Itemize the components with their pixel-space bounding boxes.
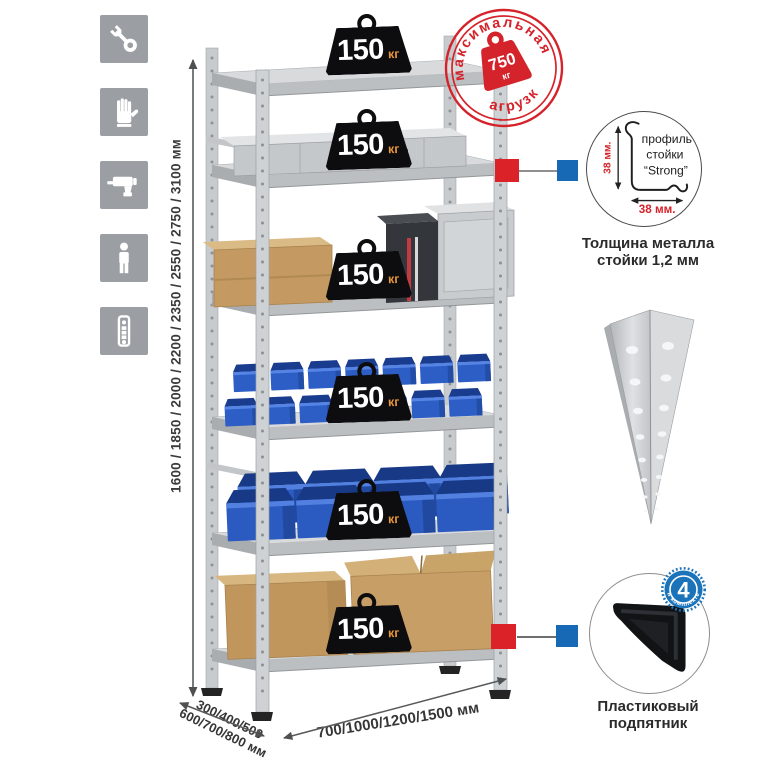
plastic-feet bbox=[201, 666, 511, 721]
svg-text:профиль: профиль bbox=[642, 132, 692, 146]
shelf-load-badge: 150кг bbox=[321, 237, 415, 302]
callout-marker-blue-bottom bbox=[556, 625, 578, 647]
svg-text:38 мм.: 38 мм. bbox=[602, 142, 613, 174]
corner-post-image bbox=[588, 298, 713, 528]
callout-marker-red-bottom bbox=[491, 624, 516, 649]
strong-profile-diagram: 38 мм. 38 мм. профиль стойки “Strong” bbox=[587, 112, 698, 223]
max-load-stamp: максимальная нагрузка 750 кг bbox=[442, 4, 566, 128]
quantity-badge: 4 в комплекте bbox=[660, 566, 707, 613]
shelf-load-badge: 150кг bbox=[321, 477, 415, 542]
callout-marker-blue-top bbox=[557, 160, 578, 181]
shelf-load-badge: 150кг bbox=[321, 360, 415, 425]
shelf-load-badge: 150кг bbox=[321, 12, 415, 77]
svg-text:стойки: стойки bbox=[646, 148, 683, 162]
svg-text:4: 4 bbox=[677, 578, 690, 603]
callout-marker-red-top bbox=[495, 159, 519, 182]
product-infographic: 1600 / 1850 / 2000 / 2200 / 2350 / 2550 … bbox=[0, 0, 765, 765]
svg-text:“Strong”: “Strong” bbox=[644, 163, 688, 177]
shelf-load-badge: 150кг bbox=[321, 591, 415, 656]
svg-text:38 мм.: 38 мм. bbox=[639, 203, 676, 216]
shelf-load-badge: 150кг bbox=[321, 107, 415, 172]
profile-detail-circle: 38 мм. 38 мм. профиль стойки “Strong” bbox=[586, 111, 702, 227]
